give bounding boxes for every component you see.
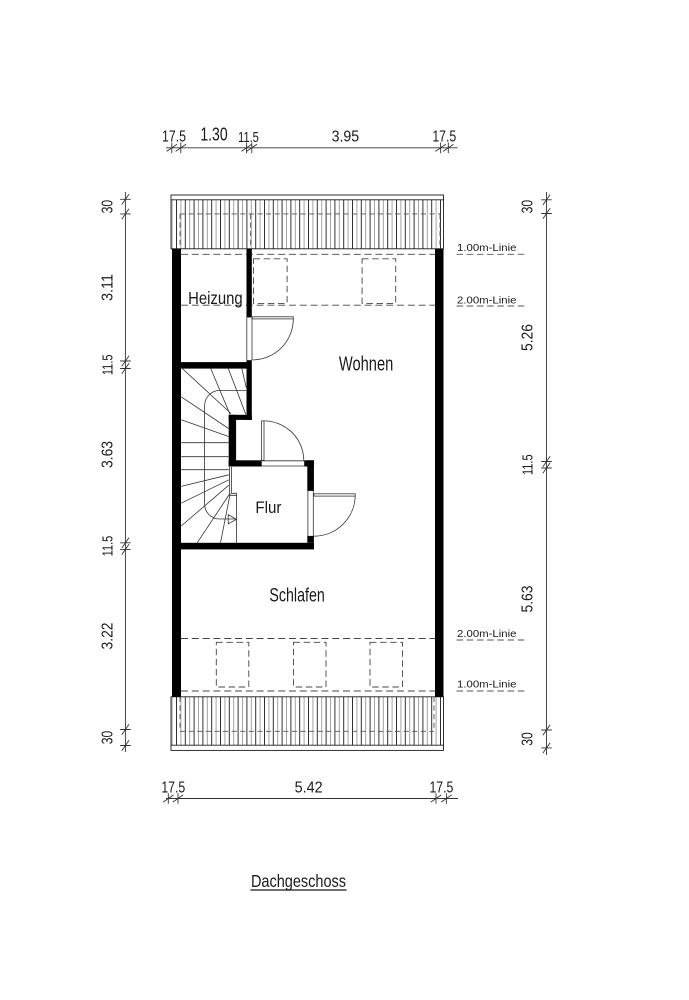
svg-text:Dachgeschoss: Dachgeschoss [251,871,346,891]
svg-text:Schlafen: Schlafen [269,586,324,607]
svg-text:1.30: 1.30 [200,123,227,144]
svg-text:11.5: 11.5 [238,129,259,146]
svg-text:30: 30 [520,732,537,746]
svg-text:30: 30 [100,200,117,214]
svg-text:3.95: 3.95 [332,128,360,145]
svg-text:30: 30 [100,731,117,745]
svg-text:17.5: 17.5 [161,779,185,796]
svg-text:3.63: 3.63 [100,441,117,468]
svg-text:3.11: 3.11 [100,274,117,301]
svg-text:3.22: 3.22 [100,622,117,649]
svg-text:2.00m-Linie: 2.00m-Linie [457,295,517,307]
svg-text:11.5: 11.5 [100,536,117,557]
svg-text:Flur: Flur [255,498,281,517]
svg-text:5.26: 5.26 [520,324,537,351]
svg-text:17.5: 17.5 [429,779,453,796]
svg-text:30: 30 [520,200,537,214]
svg-text:5.42: 5.42 [295,779,323,796]
svg-text:1.00m-Linie: 1.00m-Linie [457,242,517,254]
svg-text:1.00m-Linie: 1.00m-Linie [457,679,517,691]
svg-text:Heizung: Heizung [188,288,243,308]
svg-text:2.00m-Linie: 2.00m-Linie [457,628,517,640]
svg-text:11.5: 11.5 [520,454,537,475]
svg-text:5.63: 5.63 [520,585,537,612]
svg-text:17.5: 17.5 [432,128,456,145]
svg-text:Wohnen: Wohnen [339,353,393,375]
svg-text:17.5: 17.5 [162,128,186,145]
svg-text:11.5: 11.5 [100,354,117,375]
